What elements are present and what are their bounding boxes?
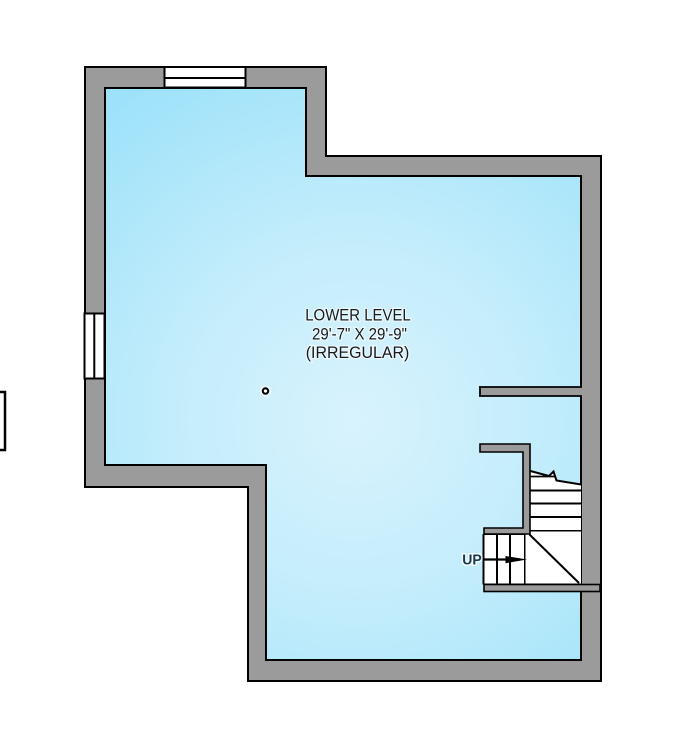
svg-text:29'-7" X 29'-9": 29'-7" X 29'-9" bbox=[312, 325, 407, 344]
svg-text:(IRREGULAR): (IRREGULAR) bbox=[306, 343, 410, 362]
svg-text:UP: UP bbox=[462, 552, 482, 569]
svg-text:LOWER LEVEL: LOWER LEVEL bbox=[305, 306, 411, 325]
